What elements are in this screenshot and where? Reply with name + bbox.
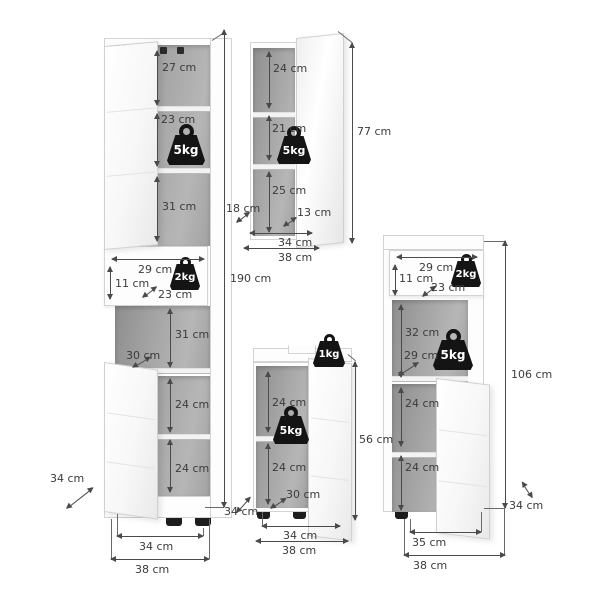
dim-line — [268, 372, 269, 432]
dim-connector — [111, 519, 112, 559]
tall-d30-label: 30 cm — [126, 349, 160, 362]
tall-lower-door-open — [104, 362, 158, 520]
door-panel-line — [311, 417, 349, 423]
midi-c24a-label: 24 cm — [405, 397, 439, 410]
dim-connector — [504, 509, 505, 555]
sink-pipe-notch — [288, 345, 316, 354]
mirror-d13-label: 13 cm — [297, 206, 331, 219]
weight-label: 2kg — [170, 264, 200, 290]
midi-height-label: 106 cm — [511, 368, 552, 381]
dim-line — [170, 309, 171, 367]
tall-side-panel — [210, 38, 232, 518]
midi-depth-label: 34 cm — [509, 499, 543, 512]
dim-connector — [209, 519, 210, 559]
weight-5kg-icon: 5kg — [167, 124, 205, 165]
dim-line-height — [352, 43, 353, 243]
midi-drawer-depth-label: 23 cm — [431, 281, 465, 294]
sink-depth-label: 34 cm — [224, 505, 258, 518]
tall-c31b-label: 31 cm — [175, 328, 209, 341]
mirror-shelf — [253, 112, 295, 118]
dim-line — [401, 456, 402, 510]
tall-c31a-label: 31 cm — [162, 200, 196, 213]
dim-line — [157, 114, 158, 166]
dim-line — [269, 52, 270, 108]
mirror-c21-label: 21 cm — [272, 122, 306, 135]
cabinet-foot — [395, 512, 408, 519]
dim-line — [250, 233, 312, 234]
weight-label: 5kg — [273, 416, 309, 444]
tall-drawer-depth-label: 23 cm — [158, 288, 192, 301]
sink-inner-width-label: 34 cm — [283, 529, 317, 542]
tall-height-label: 190 cm — [230, 272, 271, 285]
mirror-height-label: 77 cm — [357, 125, 391, 138]
cabinet-foot — [293, 512, 306, 519]
dim-line-height — [505, 241, 506, 508]
tall-inner-width-label: 34 cm — [139, 540, 173, 553]
door-panel-line — [439, 430, 487, 437]
midi-top-slab — [383, 235, 484, 250]
tall-c27-label: 27 cm — [162, 61, 196, 74]
door-panel-line — [311, 476, 349, 482]
dim-line — [111, 559, 209, 560]
mirror-c25-label: 25 cm — [272, 184, 306, 197]
mirror-inner-width-label: 34 cm — [278, 236, 312, 249]
midi-outer-width-label: 38 cm — [413, 559, 447, 572]
dim-line — [269, 116, 270, 160]
tall-drawer-width-label: 29 cm — [138, 263, 172, 276]
dim-line — [117, 536, 203, 537]
dim-line — [397, 257, 477, 258]
mirror-c24-label: 24 cm — [273, 62, 307, 75]
hinge-icon — [177, 47, 184, 54]
dim-line-height — [355, 362, 356, 520]
dim-diagonal — [522, 482, 533, 498]
weight-label: 1kg — [313, 341, 345, 367]
mirror-depth-label: 18 cm — [226, 202, 260, 215]
dim-line — [170, 379, 171, 432]
dim-line — [401, 388, 402, 446]
midi-c24b-label: 24 cm — [405, 461, 439, 474]
tall-upper-door-open — [104, 41, 158, 250]
weight-label: 5kg — [433, 340, 473, 370]
sink-height-label: 56 cm — [359, 433, 393, 446]
sink-door-open — [308, 358, 352, 541]
dim-line — [395, 265, 396, 295]
mirror-outer-width-label: 38 cm — [278, 251, 312, 264]
door-panel-line — [107, 412, 155, 420]
dim-line — [157, 51, 158, 105]
door-panel-line — [107, 172, 155, 177]
cabinet-foot — [257, 512, 270, 519]
dim-diagonal — [67, 488, 94, 509]
weight-label: 5kg — [167, 135, 205, 165]
midi-d29-label: 29 cm — [404, 349, 438, 362]
weight-1kg-icon: 1kg — [313, 334, 345, 367]
dim-line — [157, 177, 158, 241]
tall-drawer-height-label: 11 cm — [115, 277, 149, 290]
sink-c24a-label: 24 cm — [272, 396, 306, 409]
mirror-shelf — [253, 164, 295, 170]
midi-drawer-height-label: 11 cm — [399, 272, 433, 285]
tall-outer-width-label: 38 cm — [135, 563, 169, 576]
tall-c24a-label: 24 cm — [175, 398, 209, 411]
tall-c23-label: 23 cm — [161, 113, 195, 126]
weight-5kg-icon: 5kg — [273, 406, 309, 444]
midi-inner-width-label: 35 cm — [412, 536, 446, 549]
dim-line-height — [224, 30, 225, 507]
weight-2kg-icon: 2kg — [170, 257, 200, 290]
dim-line — [269, 172, 270, 232]
sink-d30-label: 30 cm — [286, 488, 320, 501]
dim-line — [410, 532, 481, 533]
dim-line — [268, 444, 269, 504]
dim-line — [170, 440, 171, 492]
dim-connector — [404, 519, 405, 555]
cabinet-foot — [166, 518, 182, 526]
dim-line — [404, 555, 505, 556]
dim-line — [401, 305, 402, 377]
furniture-dimension-diagram: 190 cm 27 cm 23 cm 5kg 31 cm 29 cm 11 cm… — [0, 0, 600, 600]
weight-label: 5kg — [277, 136, 311, 164]
midi-c32-label: 32 cm — [405, 326, 439, 339]
dim-line — [112, 259, 204, 260]
tall-c24b-label: 24 cm — [175, 462, 209, 475]
tall-depth-label: 34 cm — [50, 472, 84, 485]
dim-line — [110, 267, 111, 299]
door-panel-line — [107, 461, 155, 469]
door-panel-line — [439, 480, 487, 487]
sink-c24b-label: 24 cm — [272, 461, 306, 474]
sink-outer-width-label: 38 cm — [282, 544, 316, 557]
dim-line — [262, 526, 340, 527]
door-panel-line — [107, 107, 155, 112]
hinge-icon — [160, 47, 167, 54]
